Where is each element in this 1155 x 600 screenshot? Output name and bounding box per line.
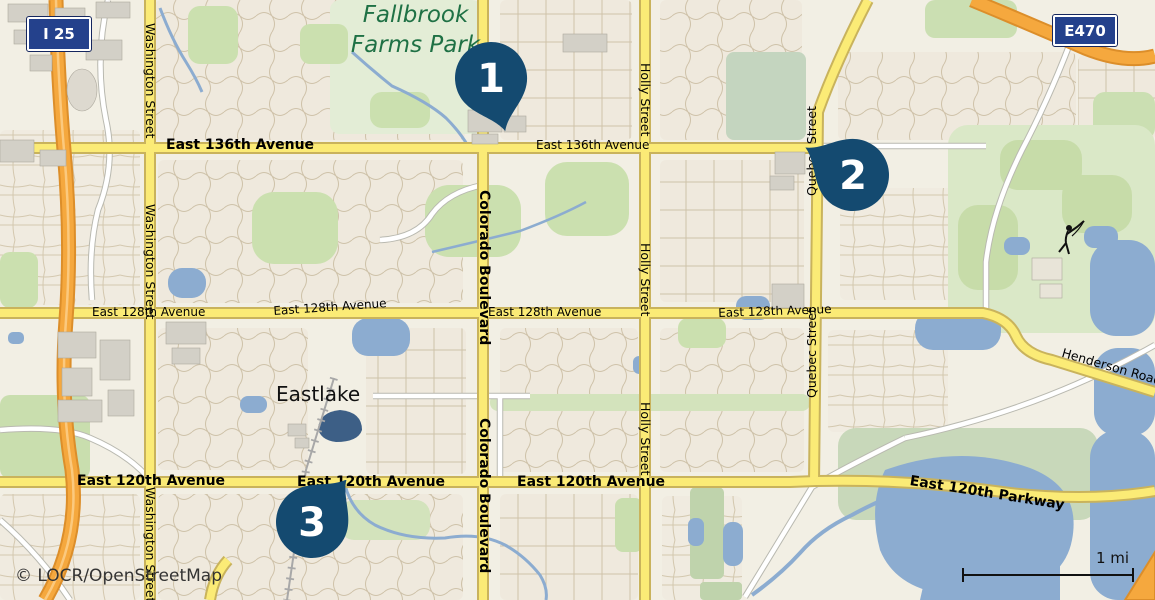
- map-marker-2[interactable]: 2: [803, 133, 903, 233]
- marker-3-number: 3: [298, 500, 326, 546]
- marker-1-number: 1: [477, 56, 505, 102]
- road-label-e120-3: East 120th Avenue: [517, 475, 665, 490]
- map-marker-1[interactable]: 1: [441, 36, 541, 136]
- road-label-washington-2: Washington Street: [143, 204, 157, 319]
- town-label-eastlake: Eastlake: [276, 382, 360, 406]
- road-label-holly-2: Holly Street: [638, 243, 652, 316]
- highway-shield-e470: E470: [1053, 15, 1117, 46]
- road-label-e128-3: East 128th Avenue: [488, 306, 601, 319]
- park-label-line1: Fallbrook: [328, 0, 503, 30]
- road-label-quebec-2: Quebec Street: [805, 308, 819, 398]
- map-marker-3[interactable]: 3: [262, 480, 362, 580]
- marker-2-number: 2: [839, 153, 867, 199]
- map-canvas[interactable]: I 25 E470 East 136th Avenue East 136th A…: [0, 0, 1155, 600]
- highway-shield-i25: I 25: [27, 17, 91, 51]
- attribution-text: © LOCR/OpenStreetMap: [15, 566, 222, 586]
- road-label-holly-1: Holly Street: [638, 63, 652, 136]
- road-label-colorado-2: Colorado Boulevard: [476, 418, 491, 573]
- road-label-colorado-1: Colorado Boulevard: [476, 190, 491, 345]
- scale-label: 1 mi: [1096, 549, 1129, 567]
- road-label-e136-east: East 136th Avenue: [536, 139, 649, 152]
- road-label-holly-3: Holly Street: [638, 402, 652, 475]
- road-label-washington-1: Washington Street: [143, 23, 157, 138]
- road-label-e136-west: East 136th Avenue: [166, 138, 314, 153]
- base-map: [0, 0, 1155, 600]
